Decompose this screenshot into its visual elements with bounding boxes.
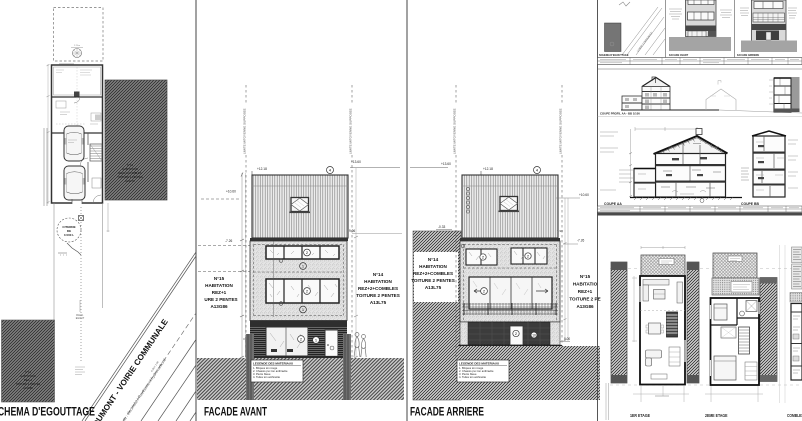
svg-text:LEGENDE DES MATERIAUX: LEGENDE DES MATERIAUX bbox=[253, 362, 293, 366]
svg-text:A13G85: A13G85 bbox=[23, 386, 33, 390]
svg-text:LIMITE MITOYENNE SUPPOSEE: LIMITE MITOYENNE SUPPOSEE bbox=[559, 108, 563, 154]
svg-text:COUPE PROFIL AA - BB 1/100: COUPE PROFIL AA - BB 1/100 bbox=[600, 112, 640, 116]
svg-text:A13G86: A13G86 bbox=[210, 304, 228, 309]
svg-text:REZ+1: REZ+1 bbox=[24, 378, 33, 382]
svg-text:N°16: N°16 bbox=[127, 163, 134, 167]
svg-text:COUPE AA: COUPE AA bbox=[604, 202, 622, 206]
svg-text:A13L75: A13L75 bbox=[425, 285, 442, 290]
svg-text:N°14: N°14 bbox=[373, 272, 384, 277]
svg-text:HABITATION: HABITATION bbox=[122, 167, 138, 171]
svg-text:REZ+1: REZ+1 bbox=[578, 289, 593, 294]
svg-text:HABITATION: HABITATION bbox=[20, 374, 35, 378]
svg-text:+10.60: +10.60 bbox=[579, 193, 589, 197]
svg-text:A13L75: A13L75 bbox=[370, 300, 387, 305]
svg-text:TOITURE 2 PENTES: TOITURE 2 PENTES bbox=[16, 382, 41, 386]
svg-text:A13L76: A13L76 bbox=[125, 179, 135, 183]
svg-text:2EME ETAGE: 2EME ETAGE bbox=[705, 413, 728, 418]
svg-text:TOITURE 2 PENTES: TOITURE 2 PENTES bbox=[356, 293, 400, 298]
svg-text:REZ+2+COMBLES: REZ+2+COMBLES bbox=[413, 271, 453, 276]
svg-text:LIMITE MITOYENNE SUPPOSEE: LIMITE MITOYENNE SUPPOSEE bbox=[349, 108, 353, 154]
svg-text:4. Tuiles ton anthracite: 4. Tuiles ton anthracite bbox=[459, 375, 487, 379]
svg-text:LEGENDE DES MATERIAUX: LEGENDE DES MATERIAUX bbox=[459, 362, 499, 366]
svg-text:REZ+2+COMBLES: REZ+2+COMBLES bbox=[358, 286, 398, 291]
svg-text:TOITURE 2 PENTES: TOITURE 2 PENTES bbox=[411, 278, 455, 283]
svg-text:FACADE ARRIERE: FACADE ARRIERE bbox=[410, 407, 484, 419]
svg-text:HABITATION: HABITATION bbox=[419, 264, 447, 269]
svg-text:COUPE BB: COUPE BB bbox=[741, 202, 759, 206]
svg-text:FACADE ARRIERE: FACADE ARRIERE bbox=[737, 54, 759, 57]
svg-text:1ER ETAGE: 1ER ETAGE bbox=[630, 413, 650, 418]
svg-text:SCHEMA D'EGOUTTAGE: SCHEMA D'EGOUTTAGE bbox=[599, 54, 629, 57]
svg-text:FACADE AVANT: FACADE AVANT bbox=[669, 54, 689, 57]
svg-text:HABITATION: HABITATION bbox=[205, 283, 233, 288]
svg-text:2.20m: 2.20m bbox=[74, 45, 80, 47]
svg-text:+13.60: +13.60 bbox=[351, 160, 361, 164]
svg-text:N°15: N°15 bbox=[580, 274, 591, 279]
svg-text:+13.60: +13.60 bbox=[441, 162, 451, 166]
svg-text:LIMITE MITOYENNE SUPPOSEE: LIMITE MITOYENNE SUPPOSEE bbox=[453, 108, 457, 154]
svg-text:REZ+1: REZ+1 bbox=[212, 290, 227, 295]
svg-text:URE 2 PENTES: URE 2 PENTES bbox=[204, 297, 237, 302]
svg-text:A13G86: A13G86 bbox=[576, 304, 594, 309]
svg-text:COMBLES: COMBLES bbox=[787, 413, 802, 418]
svg-text:+12.18: +12.18 bbox=[483, 167, 493, 171]
svg-text:-0.33: -0.33 bbox=[438, 225, 445, 229]
svg-text:LIMITE MITOYENNE SUPPOSEE: LIMITE MITOYENNE SUPPOSEE bbox=[243, 108, 247, 154]
svg-text:3 000 L: 3 000 L bbox=[64, 233, 74, 237]
svg-text:SCHEMA D'EGOUTTAGE: SCHEMA D'EGOUTTAGE bbox=[0, 407, 95, 419]
svg-text:REZ+2+COMBLES: REZ+2+COMBLES bbox=[118, 171, 141, 175]
svg-text:EGOUT: EGOUT bbox=[76, 317, 85, 320]
svg-text:N°14: N°14 bbox=[428, 257, 439, 262]
svg-text:10: 10 bbox=[532, 333, 536, 337]
svg-text:TOITURE 2 PE: TOITURE 2 PE bbox=[569, 297, 600, 302]
svg-text:N°13: N°13 bbox=[25, 370, 31, 374]
svg-text:HABITATIO: HABITATIO bbox=[573, 282, 598, 287]
svg-text:FACADE AVANT: FACADE AVANT bbox=[204, 407, 267, 419]
svg-text:4. Tuiles ton anthracite: 4. Tuiles ton anthracite bbox=[253, 375, 281, 379]
svg-text:N°15: N°15 bbox=[214, 276, 225, 281]
svg-text:-7.26: -7.26 bbox=[225, 239, 232, 243]
svg-text:-7.26: -7.26 bbox=[577, 239, 584, 243]
svg-text:0.00: 0.00 bbox=[564, 337, 570, 341]
svg-text:7.90: 7.90 bbox=[557, 229, 563, 233]
svg-text:+12.18: +12.18 bbox=[257, 167, 267, 171]
svg-text:TOITURE 2 PENTES: TOITURE 2 PENTES bbox=[117, 175, 143, 179]
svg-text:+10.60: +10.60 bbox=[226, 190, 236, 194]
svg-text:HABITATION: HABITATION bbox=[364, 279, 392, 284]
svg-text:9.06: 9.06 bbox=[349, 229, 355, 233]
